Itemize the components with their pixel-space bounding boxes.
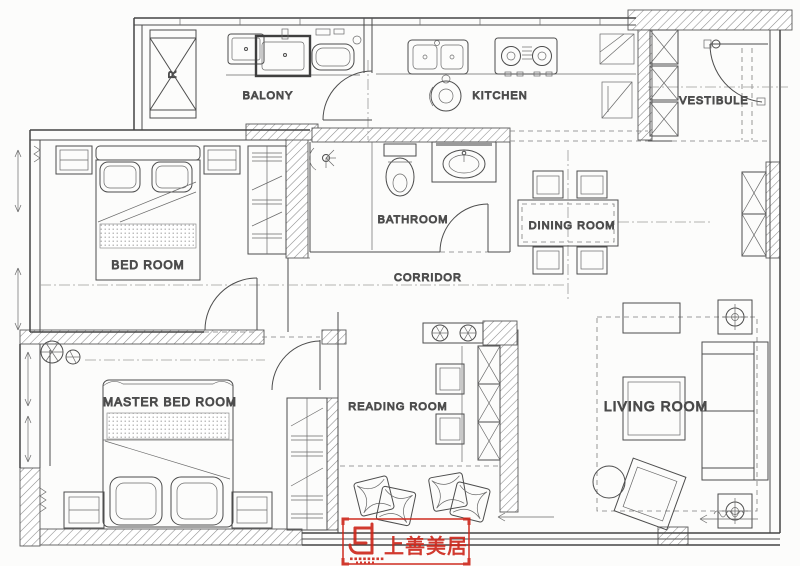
room-master-bedroom: MASTER BED ROOM xyxy=(41,341,327,530)
room-label-living: LIVING ROOM xyxy=(604,398,708,414)
room-living: LIVING ROOM xyxy=(593,300,768,530)
balcony-sink xyxy=(228,34,264,64)
room-label-master-bedroom: MASTER BED ROOM xyxy=(103,395,237,409)
dining-chair xyxy=(577,247,607,274)
wardrobe xyxy=(287,398,327,530)
plant-icon xyxy=(41,341,80,364)
plant-icon xyxy=(460,325,476,341)
shoe-cabinet xyxy=(650,30,678,136)
pillow xyxy=(152,162,192,192)
side-table-lamp xyxy=(718,494,752,528)
kettle xyxy=(430,75,462,111)
open-cabinet xyxy=(602,82,632,118)
nightstand xyxy=(204,146,240,174)
room-bathroom: BATHROOM xyxy=(310,142,496,226)
balcony-kitchen-door xyxy=(323,71,372,120)
balcony-basin xyxy=(312,29,361,70)
plant-icon xyxy=(432,325,448,341)
dining-chair xyxy=(533,247,563,274)
room-label-reading: READING ROOM xyxy=(348,401,447,413)
tv-stand xyxy=(623,303,680,333)
bookcase xyxy=(478,346,500,460)
side-table-lamp xyxy=(718,300,752,334)
gas-stove xyxy=(495,38,557,76)
nightstand xyxy=(56,146,92,174)
room-bedroom: BED ROOM xyxy=(56,146,286,280)
room-label-bedroom: BED ROOM xyxy=(111,258,184,272)
dining-cabinet xyxy=(742,172,766,256)
room-reading: READING ROOM xyxy=(348,346,500,526)
nightstand xyxy=(232,492,272,528)
bedroom-door xyxy=(205,278,257,330)
nightstand xyxy=(64,492,104,528)
watermark-text: 上善美居 xyxy=(384,534,468,558)
reading-chair xyxy=(436,414,464,444)
room-label-vestibule: VESTIBULE xyxy=(679,95,749,107)
reading-chair xyxy=(436,364,464,394)
room-vestibule: VESTIBULE xyxy=(650,30,749,136)
pillow xyxy=(100,162,140,192)
dining-chair xyxy=(533,171,563,198)
room-label-bathroom: BATHROOM xyxy=(378,214,449,226)
floor-cushion xyxy=(353,475,394,516)
room-dining: DINING ROOM xyxy=(518,171,766,274)
floor-plan-drawing: R BALONY xyxy=(0,0,800,566)
wardrobe xyxy=(248,146,286,254)
toilet xyxy=(384,144,416,196)
watermark-subtext-marks xyxy=(350,558,383,564)
kitchen-sink xyxy=(408,40,468,74)
washbasin xyxy=(432,142,496,182)
sofa xyxy=(702,342,768,480)
window-mullions xyxy=(180,18,600,25)
room-label-balcony: BALONY xyxy=(243,90,294,102)
room-balcony: R BALONY xyxy=(150,29,361,118)
room-kitchen: KITCHEN xyxy=(408,34,634,118)
floor-cushion xyxy=(428,472,467,511)
pillow xyxy=(171,477,223,525)
room-label-kitchen: KITCHEN xyxy=(472,90,527,102)
room-corridor: CORRIDOR xyxy=(394,272,483,343)
room-label-corridor: CORRIDOR xyxy=(394,272,462,284)
master-bedroom-door xyxy=(272,340,320,390)
dining-chair xyxy=(577,171,607,198)
corner-counter xyxy=(600,34,634,64)
angled-table xyxy=(614,458,686,530)
shower-head-icon xyxy=(310,148,336,170)
floor-plan: R BALONY xyxy=(0,0,800,566)
floor-cushion xyxy=(449,481,490,522)
console-shelf xyxy=(423,323,483,343)
pillow xyxy=(110,477,162,525)
bathroom-door xyxy=(440,204,488,252)
washing-machine: R xyxy=(150,30,196,118)
floor-cushion xyxy=(376,486,416,526)
room-label-dining: DINING ROOM xyxy=(529,220,616,232)
washer-letter: R xyxy=(167,70,179,79)
